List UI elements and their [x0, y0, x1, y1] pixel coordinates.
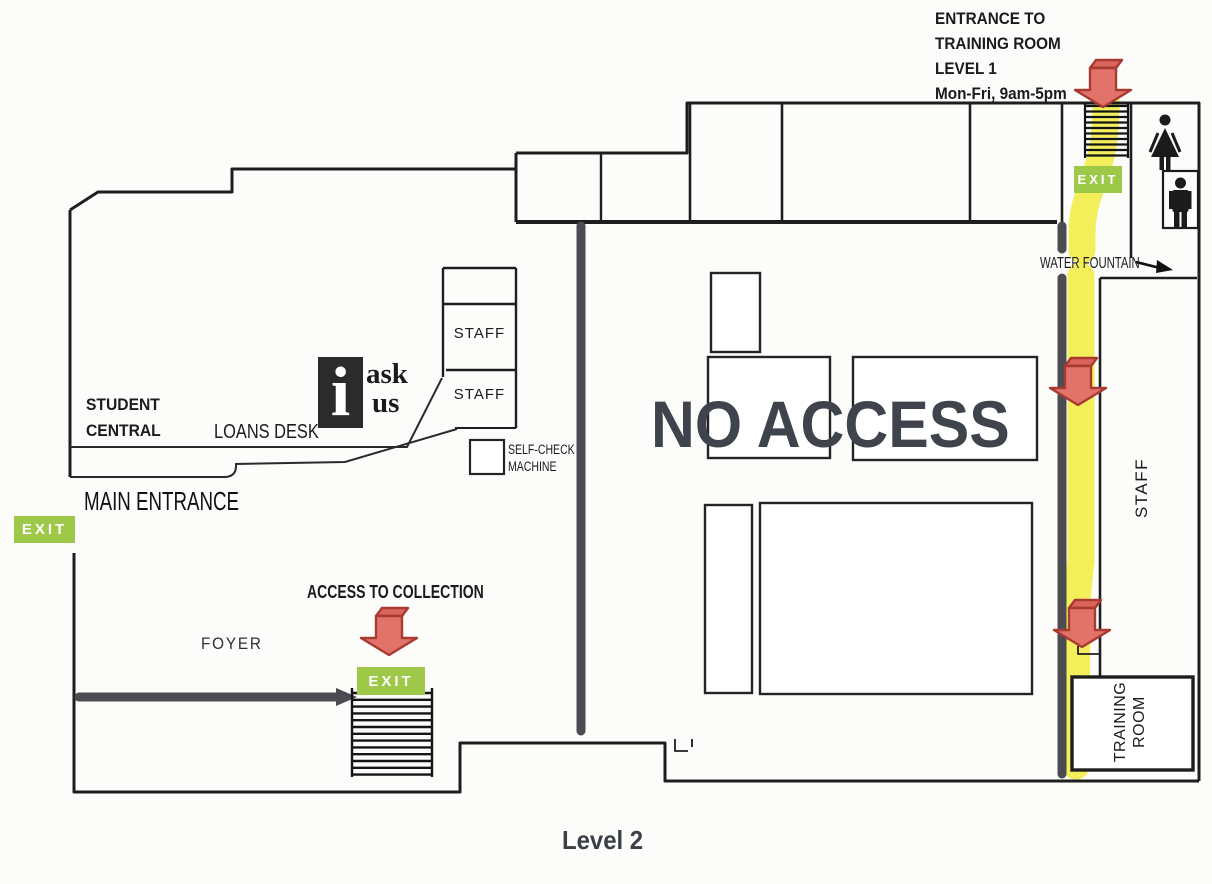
- arrow-entrance-down-icon: [1075, 60, 1131, 107]
- water-fountain-arrow-icon: [1136, 260, 1173, 273]
- training-room-line: TRAINING: [1111, 662, 1130, 782]
- exit-badge-upper: EXIT: [1074, 166, 1122, 193]
- student-central-line: STUDENT: [86, 392, 161, 418]
- main-entrance-label: MAIN ENTRANCE: [84, 487, 239, 516]
- staff-room-2-label: STAFF: [443, 387, 516, 404]
- self-check-label: SELF-CHECK MACHINE: [508, 441, 575, 475]
- training-room-label: TRAINING ROOM: [1111, 662, 1153, 782]
- info-i: i: [331, 358, 350, 428]
- floorplan-level2: ENTRANCE TO TRAINING ROOM LEVEL 1 Mon-Fr…: [0, 0, 1212, 884]
- training-room-line: ROOM: [1130, 662, 1149, 782]
- staff-room-1-label: STAFF: [443, 326, 516, 343]
- shelving-blocks: [705, 273, 1037, 694]
- level-caption: Level 2: [562, 826, 643, 855]
- highlighted-route-path: [1076, 95, 1106, 766]
- female-toilet-icon: [1150, 115, 1180, 171]
- stairs-lower: [352, 688, 432, 777]
- access-collection-label: ACCESS TO COLLECTION: [307, 583, 484, 603]
- foyer-label: FOYER: [201, 635, 263, 654]
- self-check-machine-box: [470, 440, 504, 474]
- entrance-note-line: ENTRANCE TO: [935, 6, 1067, 31]
- student-central-line: CENTRAL: [86, 418, 161, 444]
- self-check-line: MACHINE: [508, 458, 575, 475]
- info-desk-icon: i: [318, 357, 363, 428]
- shelf-block: [760, 503, 1032, 694]
- staff-room-right-label: STAFF: [1132, 438, 1154, 538]
- arrow-collection-icon: [361, 608, 417, 655]
- exit-badge-left: EXIT: [14, 516, 75, 543]
- loans-desk-label: LOANS DESK: [214, 421, 319, 443]
- male-toilet-icon: [1163, 171, 1198, 228]
- entrance-note-line: TRAINING ROOM: [935, 31, 1067, 56]
- no-access-label: NO ACCESS: [651, 391, 1010, 457]
- student-central-label: STUDENT CENTRAL: [86, 392, 161, 444]
- self-check-line: SELF-CHECK: [508, 441, 575, 458]
- ask-us-label-us: us: [372, 387, 399, 420]
- floorplan-svg: [0, 0, 1212, 884]
- exit-badge-lower: EXIT: [357, 667, 425, 695]
- entrance-note-line: LEVEL 1: [935, 56, 1067, 81]
- shelf-block: [711, 273, 760, 352]
- barrier-arrowhead: [336, 688, 357, 706]
- shelf-block: [705, 505, 752, 693]
- entrance-note: ENTRANCE TO TRAINING ROOM LEVEL 1 Mon-Fr…: [935, 6, 1067, 106]
- entrance-note-line: Mon-Fri, 9am-5pm: [935, 81, 1067, 106]
- water-fountain-label: WATER FOUNTAIN: [1040, 255, 1140, 272]
